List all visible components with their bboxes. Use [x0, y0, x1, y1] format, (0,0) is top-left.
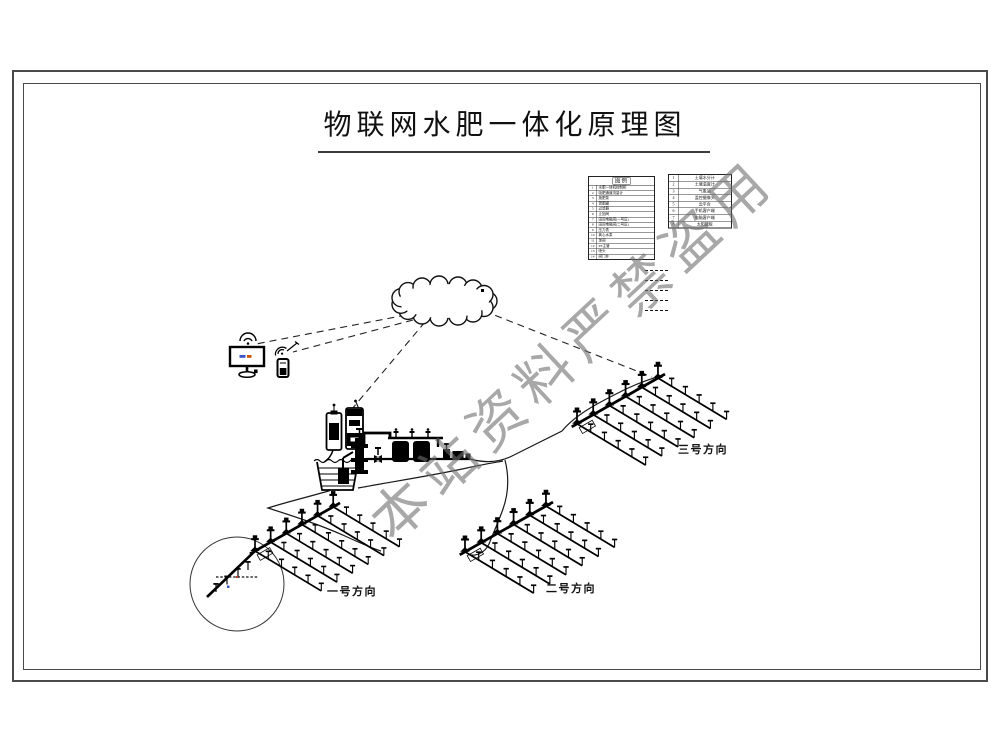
link-cloud-station: [352, 322, 425, 409]
screen-pixel-blue: [240, 355, 246, 358]
fertilizer-tank: [327, 404, 342, 450]
fertigation-station: [314, 400, 471, 490]
link-cloud-field3: [484, 311, 652, 377]
screen-pixel-red: [247, 355, 252, 358]
wifi-icon: [273, 345, 288, 358]
drawing-sheet: 物联网水肥一体化原理图: [0, 0, 1000, 750]
pipe-to-field2: [470, 460, 508, 555]
phone-icon: [273, 342, 299, 378]
field-grid-2: [460, 490, 618, 593]
pipe-station-out: [358, 461, 503, 488]
cloud-dot: [481, 289, 484, 292]
wifi-icon: [240, 333, 256, 345]
link-cloud-monitor: [256, 315, 406, 344]
field1-extension: [207, 551, 255, 597]
monitor-icon: [230, 333, 264, 377]
filter-tanks: [388, 428, 443, 462]
submersible-pump: [338, 468, 349, 484]
field-grid-3: [572, 362, 730, 465]
outlet-cluster: [443, 449, 471, 460]
cloud-server-shape: [392, 276, 497, 326]
network-links: [256, 311, 652, 409]
schematic-drawing: [0, 0, 1000, 750]
